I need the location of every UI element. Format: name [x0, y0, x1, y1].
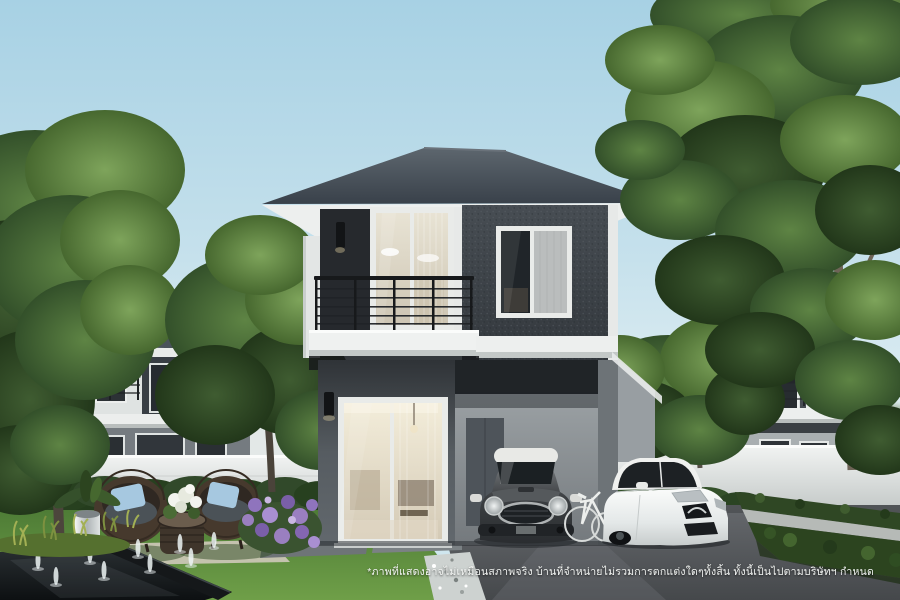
car-headlight-left — [485, 497, 503, 515]
wall-lamp-upper — [336, 222, 345, 248]
scene-illustration — [0, 0, 900, 600]
purple-flower-bush — [238, 495, 322, 554]
car-grille — [499, 503, 553, 525]
upper-window — [496, 226, 572, 318]
accent-wall-panel — [320, 209, 372, 338]
car-headlight-right — [549, 497, 567, 515]
car-white-roof — [494, 448, 558, 464]
disclaimer-text: *ภาพที่แสดงอาจไม่เหมือนสภาพจริง บ้านที่จ… — [367, 566, 874, 579]
wall-lamp-lower — [324, 392, 334, 416]
living-room-sliding-door — [334, 397, 452, 548]
main-house — [262, 148, 662, 548]
rendering-canvas: *ภาพที่แสดงอาจไม่เหมือนสภาพจริง บ้านที่จ… — [0, 0, 900, 600]
